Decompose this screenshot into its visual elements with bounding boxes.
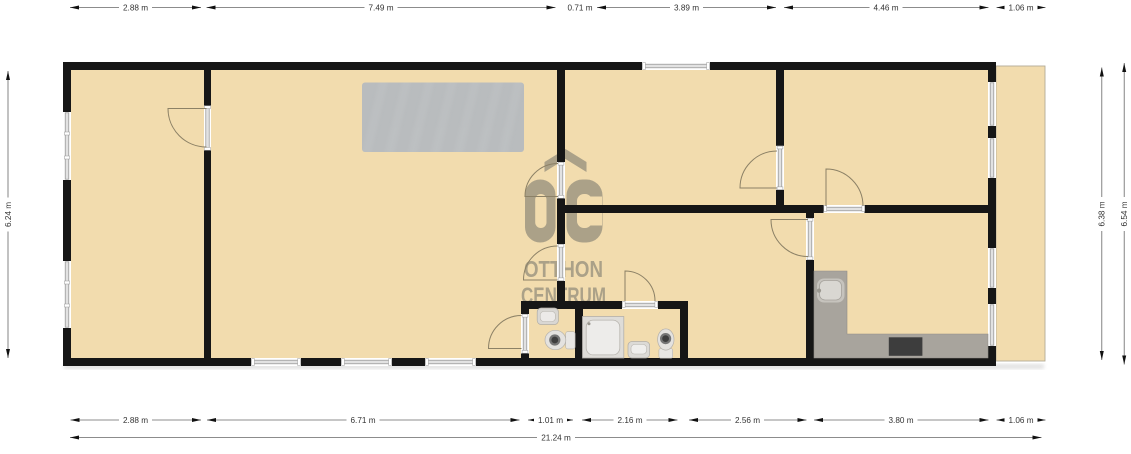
svg-text:6.54 m: 6.54 m xyxy=(1120,201,1129,226)
svg-text:7.49 m: 7.49 m xyxy=(368,3,393,12)
svg-text:2.88 m: 2.88 m xyxy=(123,416,148,425)
svg-text:1.06 m: 1.06 m xyxy=(1008,416,1033,425)
svg-text:3.80 m: 3.80 m xyxy=(888,416,913,425)
svg-text:6.71 m: 6.71 m xyxy=(350,416,375,425)
svg-text:3.89 m: 3.89 m xyxy=(674,3,699,12)
svg-text:6.38 m: 6.38 m xyxy=(1098,201,1107,226)
svg-text:1.01 m: 1.01 m xyxy=(538,416,563,425)
svg-text:2.88 m: 2.88 m xyxy=(123,3,148,12)
svg-text:0.71 m: 0.71 m xyxy=(567,3,592,12)
svg-text:4.46 m: 4.46 m xyxy=(873,3,898,12)
svg-text:21.24 m: 21.24 m xyxy=(541,433,571,442)
svg-text:2.16 m: 2.16 m xyxy=(617,416,642,425)
svg-text:2.56 m: 2.56 m xyxy=(735,416,760,425)
svg-text:6.24 m: 6.24 m xyxy=(4,202,13,227)
svg-text:1.06 m: 1.06 m xyxy=(1008,3,1033,12)
